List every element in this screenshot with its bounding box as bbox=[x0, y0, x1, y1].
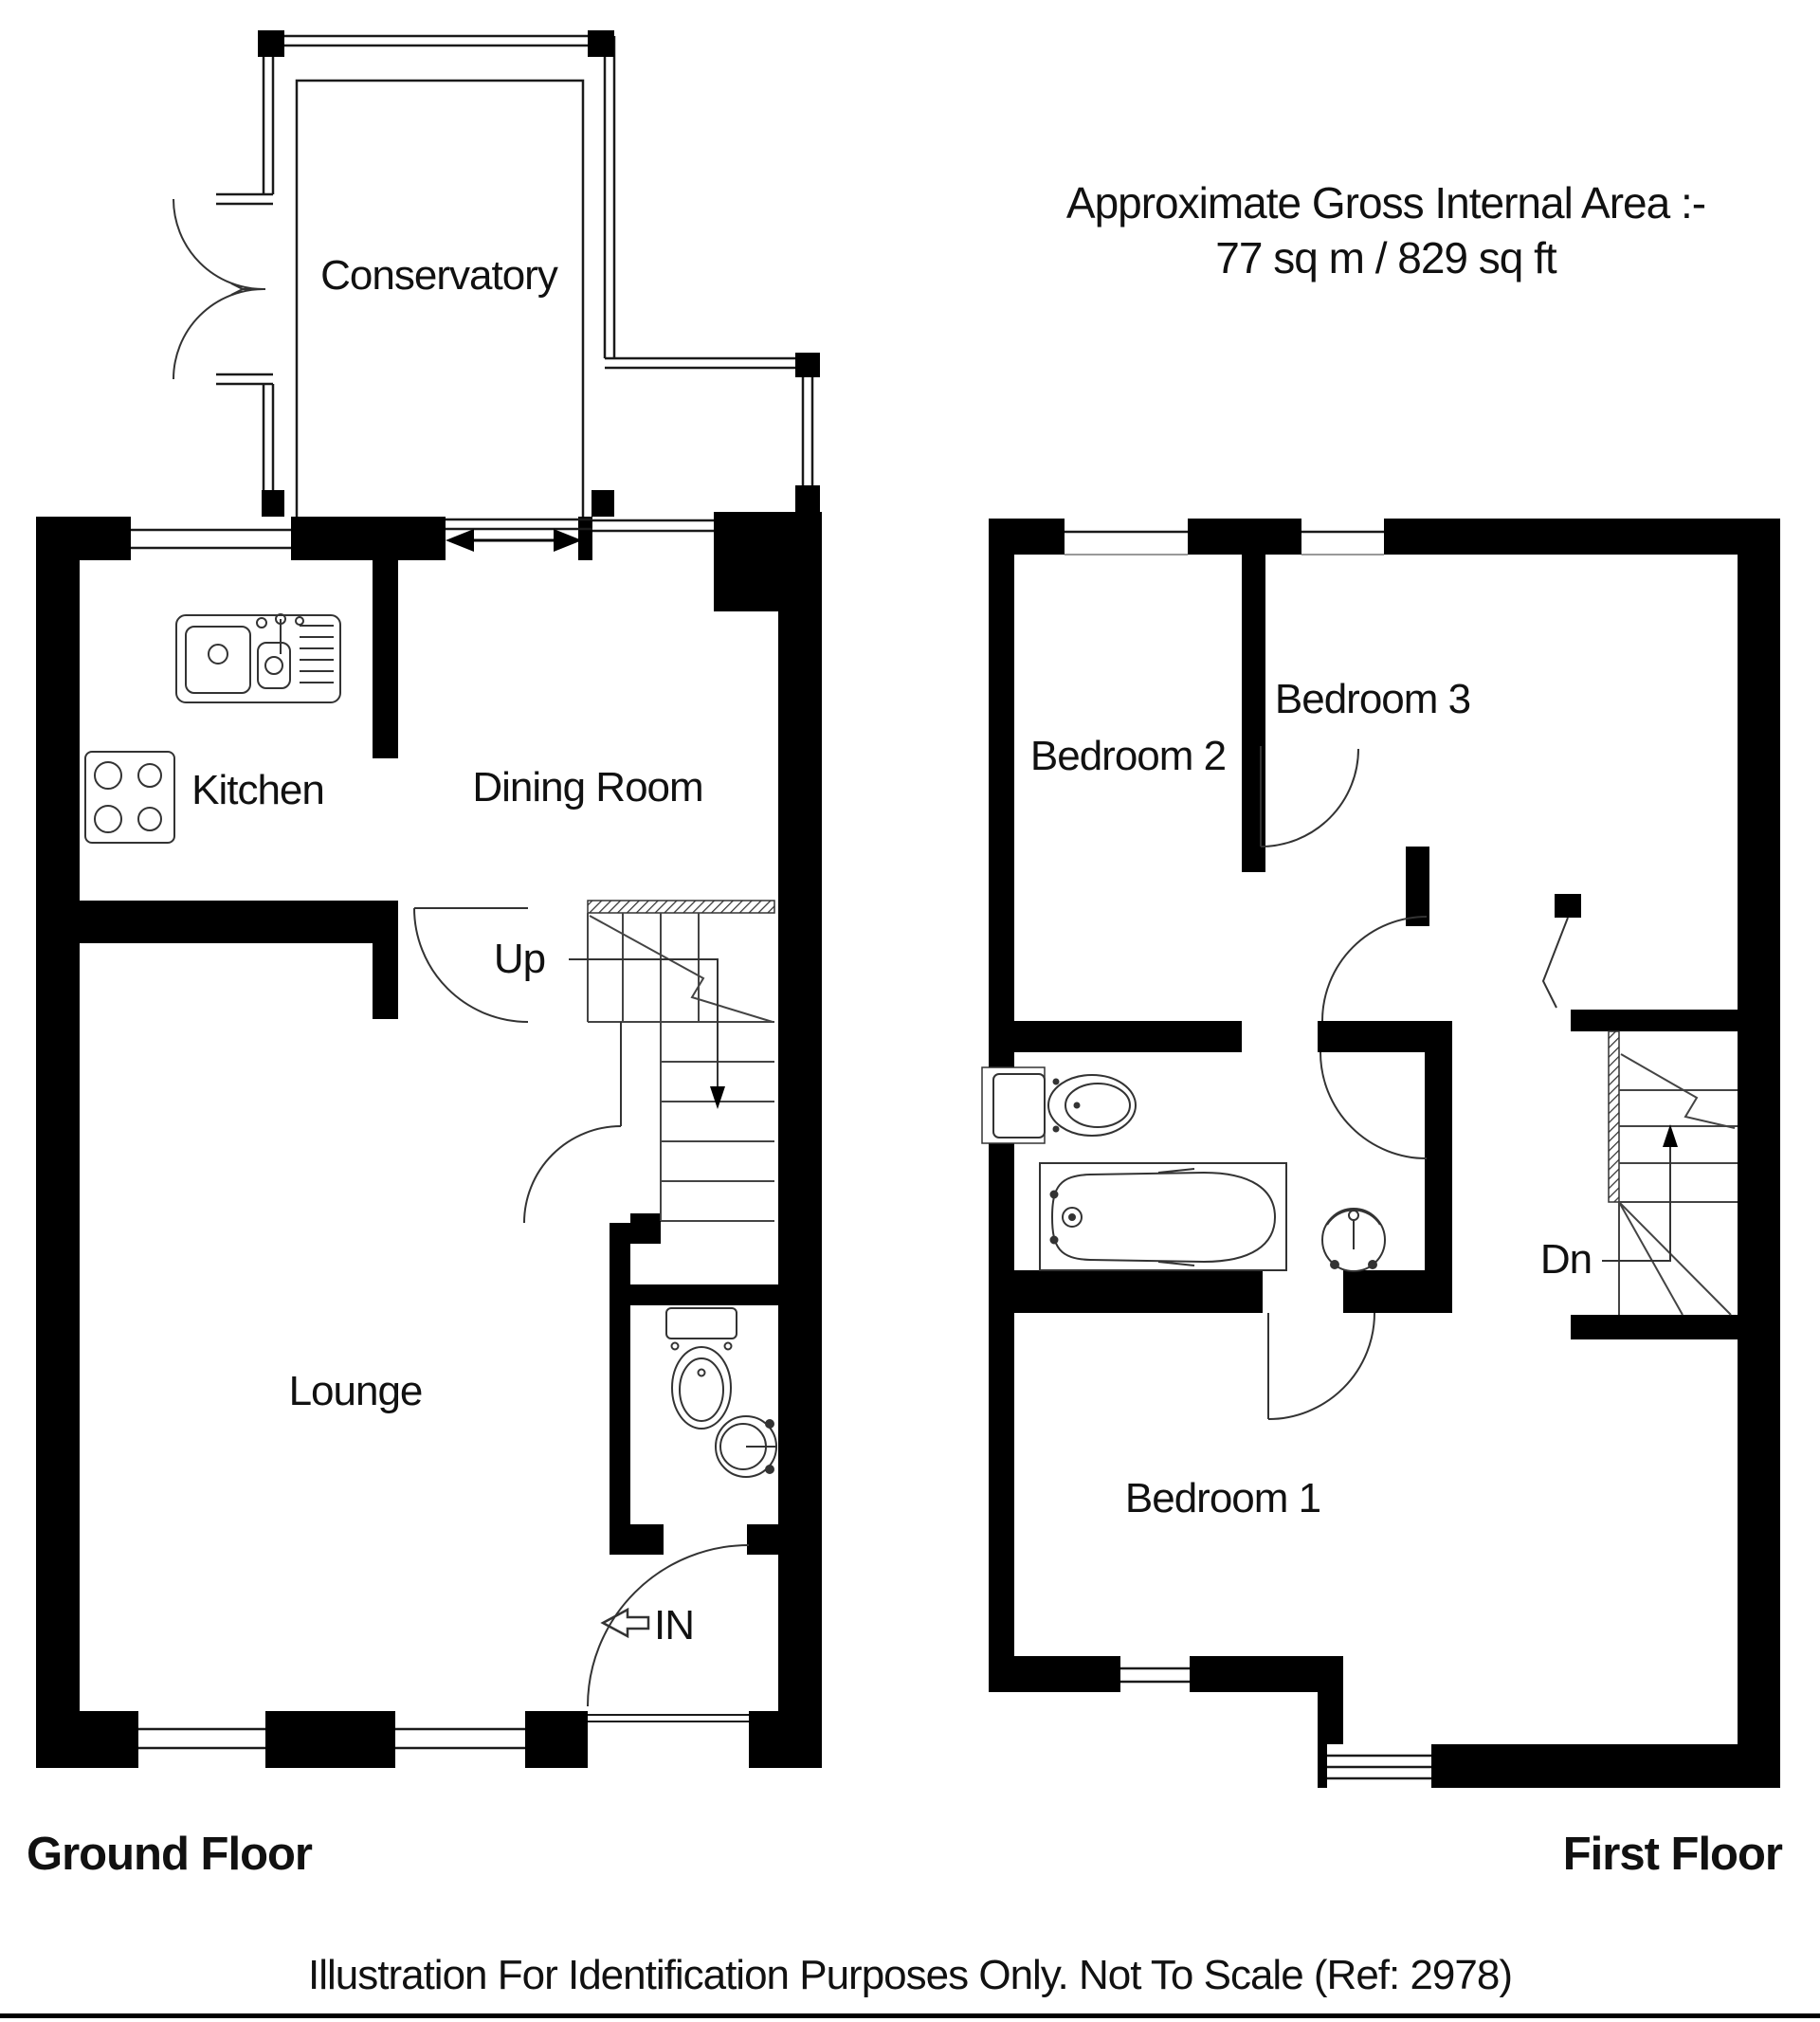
dining-room-label: Dining Room bbox=[472, 764, 702, 811]
gross-area-title: Approximate Gross Internal Area :- bbox=[1066, 178, 1705, 228]
lounge-window-right bbox=[395, 1711, 525, 1768]
hob-icon bbox=[85, 752, 174, 843]
bedroom1-bay-window bbox=[1327, 1744, 1431, 1788]
bathroom-toilet-icon bbox=[982, 1067, 1136, 1143]
lounge-label: Lounge bbox=[289, 1368, 423, 1414]
dn-label: Dn bbox=[1540, 1236, 1592, 1283]
bedroom1-label: Bedroom 1 bbox=[1125, 1475, 1320, 1521]
kitchen-label: Kitchen bbox=[191, 767, 324, 813]
conservatory-label: Conservatory bbox=[320, 252, 558, 299]
in-label: IN bbox=[654, 1602, 694, 1649]
bedroom1-door-arc bbox=[1268, 1313, 1374, 1419]
hall-door-icon bbox=[524, 1022, 621, 1223]
bedroom3-door-arc bbox=[1261, 749, 1358, 847]
floorplan-page: Conservatory Kitchen Dining Room Up Loun… bbox=[0, 0, 1820, 2022]
first-floor-title: First Floor bbox=[1563, 1829, 1783, 1880]
floorplan-drawing: Conservatory Kitchen Dining Room Up Loun… bbox=[0, 0, 1820, 2022]
kitchen-window bbox=[131, 517, 291, 560]
disclaimer-text: Illustration For Identification Purposes… bbox=[308, 1952, 1512, 1998]
ground-floor-plan: Conservatory Kitchen Dining Room Up Loun… bbox=[36, 30, 822, 1768]
bedroom1-window bbox=[1120, 1656, 1190, 1692]
bedroom3-window bbox=[1301, 519, 1384, 555]
first-floor-plan: Bedroom 2 Bedroom 3 Bedroom 1 Dn bbox=[982, 519, 1780, 1788]
kitchen-sink-icon bbox=[176, 614, 340, 702]
lounge-window-left bbox=[138, 1711, 265, 1768]
bedroom2-door-arc bbox=[1322, 917, 1427, 1021]
bedroom3-label: Bedroom 3 bbox=[1275, 676, 1470, 722]
landing-door-leaf bbox=[1543, 918, 1568, 1008]
wc-basin-icon bbox=[716, 1416, 776, 1477]
ground-floor-walls bbox=[36, 512, 822, 1768]
bedroom2-window bbox=[1065, 519, 1188, 555]
bedroom2-label: Bedroom 2 bbox=[1030, 733, 1226, 779]
bathroom-basin-icon bbox=[1322, 1209, 1385, 1271]
gross-area-value: 77 sq m / 829 sq ft bbox=[1215, 233, 1557, 282]
french-doors-icon bbox=[173, 199, 265, 379]
ground-floor-windows bbox=[131, 517, 525, 1768]
bath-icon bbox=[1040, 1163, 1286, 1270]
up-label: Up bbox=[494, 936, 545, 982]
ground-floor-title: Ground Floor bbox=[27, 1829, 313, 1880]
bathroom-door-arc bbox=[1320, 1052, 1427, 1158]
staircase-up bbox=[569, 901, 774, 1221]
staircase-down bbox=[1602, 1031, 1738, 1315]
in-arrow-icon bbox=[603, 1610, 648, 1636]
bottom-border bbox=[0, 2013, 1820, 2018]
wc-toilet-icon bbox=[666, 1308, 737, 1429]
